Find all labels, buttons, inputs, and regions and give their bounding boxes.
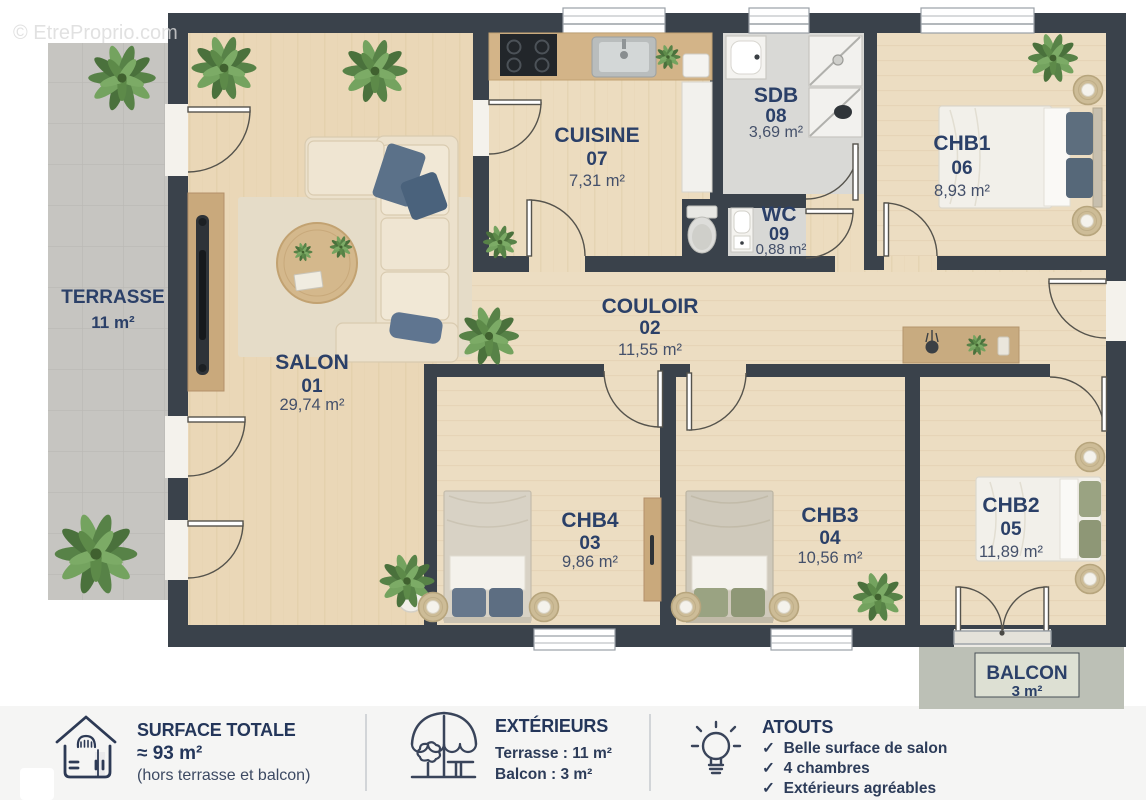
svg-text:(hors terrasse et balcon): (hors terrasse et balcon) bbox=[137, 767, 310, 784]
svg-text:TERRASSE: TERRASSE bbox=[61, 287, 164, 308]
svg-text:CHB2: CHB2 bbox=[982, 494, 1039, 517]
svg-text:WC: WC bbox=[762, 203, 797, 226]
svg-text:CHB1: CHB1 bbox=[933, 132, 990, 155]
svg-text:✓ Belle surface de salon: ✓ Belle surface de salon bbox=[762, 740, 947, 757]
svg-text:02: 02 bbox=[639, 318, 660, 339]
svg-text:SALON: SALON bbox=[275, 351, 349, 374]
svg-text:ATOUTS: ATOUTS bbox=[762, 717, 833, 737]
svg-text:03: 03 bbox=[579, 533, 600, 554]
svg-text:COULOIR: COULOIR bbox=[602, 295, 699, 318]
svg-text:CHB4: CHB4 bbox=[561, 509, 618, 532]
svg-text:EXTÉRIEURS: EXTÉRIEURS bbox=[495, 715, 608, 736]
svg-text:Balcon : 3 m²: Balcon : 3 m² bbox=[495, 766, 592, 783]
svg-text:11 m²: 11 m² bbox=[91, 313, 135, 332]
svg-text:SDB: SDB bbox=[754, 84, 798, 107]
svg-text:8,93 m²: 8,93 m² bbox=[934, 182, 990, 200]
svg-text:3 m²: 3 m² bbox=[1012, 683, 1043, 700]
svg-text:7,31 m²: 7,31 m² bbox=[569, 172, 625, 190]
svg-text:≈ 93 m²: ≈ 93 m² bbox=[137, 743, 202, 764]
svg-text:✓ Extérieurs agréables: ✓ Extérieurs agréables bbox=[762, 780, 936, 797]
svg-text:3,69 m²: 3,69 m² bbox=[749, 124, 804, 141]
svg-text:© EtreProprio.com: © EtreProprio.com bbox=[13, 22, 178, 44]
svg-text:04: 04 bbox=[819, 528, 841, 549]
svg-text:11,89 m²: 11,89 m² bbox=[979, 543, 1043, 561]
svg-text:Terrasse : 11 m²: Terrasse : 11 m² bbox=[495, 745, 612, 762]
svg-text:29,74 m²: 29,74 m² bbox=[279, 396, 345, 414]
svg-text:01: 01 bbox=[301, 376, 323, 397]
svg-text:BALCON: BALCON bbox=[986, 663, 1067, 684]
svg-text:0,88 m²: 0,88 m² bbox=[756, 241, 807, 258]
svg-text:SURFACE TOTALE: SURFACE TOTALE bbox=[137, 720, 296, 740]
svg-text:9,86 m²: 9,86 m² bbox=[562, 553, 618, 571]
svg-text:11,55 m²: 11,55 m² bbox=[618, 341, 682, 359]
svg-text:07: 07 bbox=[586, 149, 607, 170]
svg-text:CHB3: CHB3 bbox=[801, 504, 858, 527]
svg-text:10,56 m²: 10,56 m² bbox=[797, 549, 863, 567]
svg-text:05: 05 bbox=[1000, 519, 1022, 540]
svg-text:CUISINE: CUISINE bbox=[554, 124, 639, 147]
svg-text:06: 06 bbox=[951, 158, 972, 179]
svg-text:✓ 4 chambres: ✓ 4 chambres bbox=[762, 760, 870, 777]
